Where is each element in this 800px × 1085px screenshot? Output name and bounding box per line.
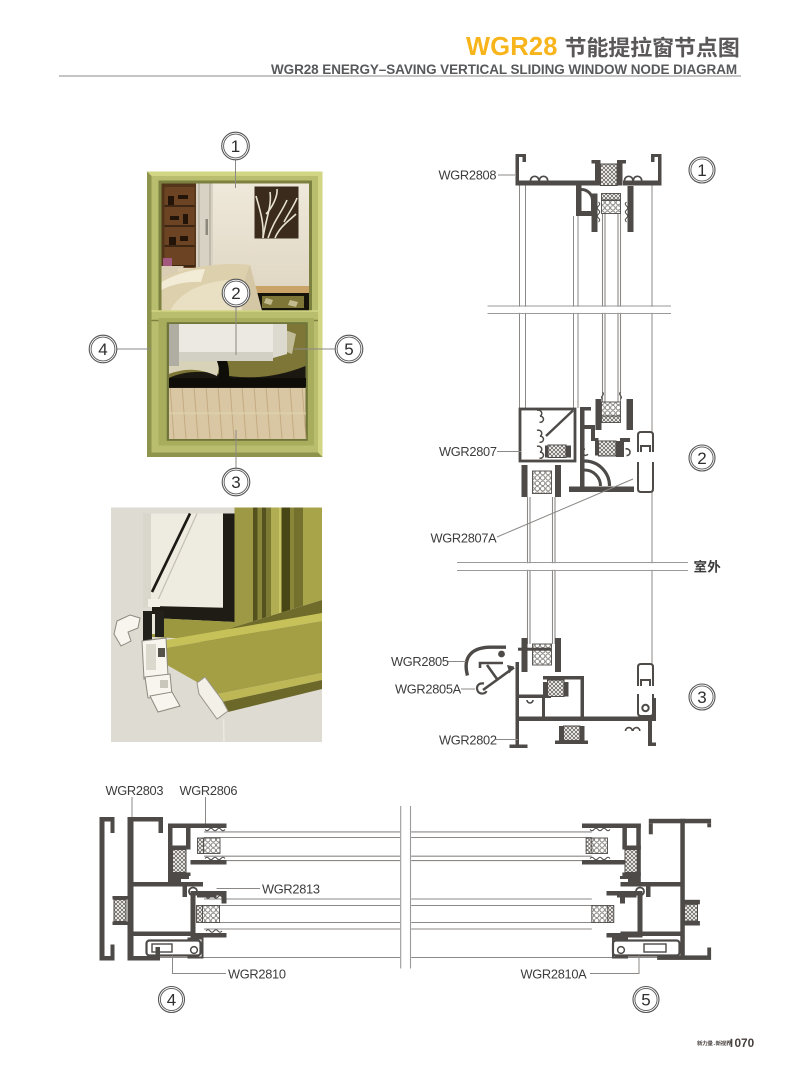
svg-text:2: 2 [697,449,706,468]
svg-text:1: 1 [231,137,240,156]
svg-text:WGR2803: WGR2803 [106,783,164,798]
svg-text:WGR2810A: WGR2810A [521,967,588,982]
svg-text:3: 3 [231,473,240,492]
svg-text:WGR2807A: WGR2807A [431,531,498,546]
svg-text:WGR2805A: WGR2805A [395,682,462,697]
svg-text:WGR2807: WGR2807 [439,444,497,459]
svg-text:4: 4 [98,340,107,359]
svg-text:WGR2808: WGR2808 [439,168,497,183]
svg-text:4: 4 [167,991,176,1010]
svg-text:5: 5 [641,991,650,1010]
svg-text:WGR2802: WGR2802 [439,733,497,748]
svg-text:WGR2810: WGR2810 [228,967,286,982]
svg-text:WGR28 ENERGY–SAVING VERTICAL S: WGR28 ENERGY–SAVING VERTICAL SLIDING WIN… [271,62,737,77]
svg-text:070: 070 [735,1036,755,1050]
svg-text:WGR2805: WGR2805 [391,654,449,669]
svg-text:WGR28: WGR28 [466,33,558,61]
svg-text:2: 2 [231,284,240,303]
svg-text:WGR2813: WGR2813 [262,882,320,897]
svg-text:3: 3 [697,688,706,707]
svg-text:WGR2806: WGR2806 [180,783,238,798]
svg-text:1: 1 [697,161,706,180]
svg-text:5: 5 [344,340,353,359]
